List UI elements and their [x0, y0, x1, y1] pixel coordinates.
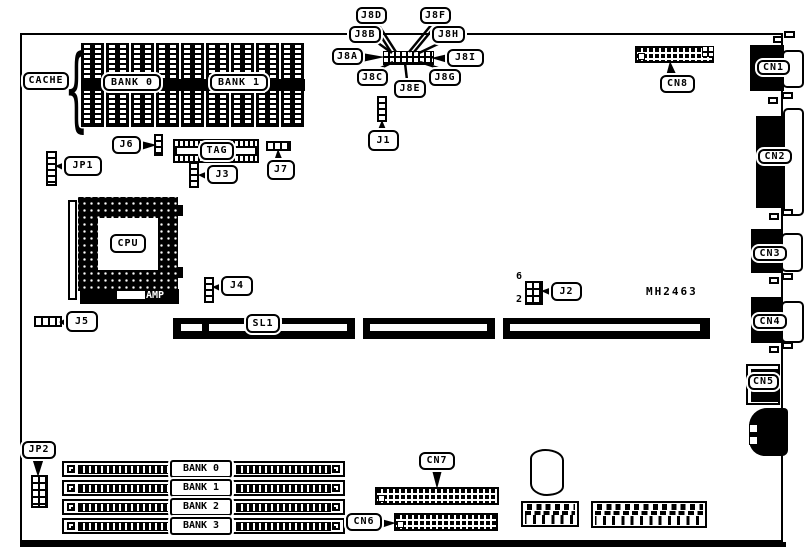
j8f-label: J8F: [420, 7, 451, 24]
bracket-tab: [782, 342, 793, 349]
simm-contacts: [78, 503, 172, 512]
power-connector-large: [591, 501, 707, 528]
j2-pin6-number: 6: [516, 272, 522, 282]
cn2-label: CN2: [758, 149, 792, 164]
connector-j4: [204, 277, 214, 303]
simm-clip: [67, 522, 75, 530]
cn3-label: CN3: [753, 246, 787, 261]
j2-label: J2: [551, 282, 582, 301]
connector-jp1: [46, 151, 57, 186]
cn7-pin1-marker: [378, 495, 385, 502]
cn7-label: CN7: [419, 452, 455, 470]
j8b-label: J8B: [349, 26, 381, 43]
cn5-label: CN5: [748, 374, 779, 390]
simm-contacts: [236, 465, 331, 474]
j8h-label: J8H: [432, 26, 465, 43]
connector-j5: [34, 316, 62, 327]
connector-j7: [266, 141, 291, 151]
cn8-pin1-marker: [638, 53, 645, 60]
simm-contacts: [236, 522, 331, 531]
power-cells: [595, 516, 703, 525]
simm-clip: [67, 503, 75, 511]
simm-bank3-label: BANK 3: [170, 517, 232, 535]
socket-tab: [178, 205, 183, 216]
bracket-tab: [769, 346, 779, 353]
j2-pin2-number: 2: [516, 295, 522, 305]
simm-clip: [332, 484, 340, 492]
connector-j1: [377, 96, 387, 122]
simm-clip: [67, 484, 75, 492]
small-pin-block: [702, 46, 714, 57]
bracket-tab: [773, 36, 783, 43]
socket-tab: [178, 267, 183, 278]
bracket-tab: [782, 92, 793, 99]
cn4-label: CN4: [753, 314, 787, 329]
connector-j6: [154, 134, 163, 156]
battery-outline: [530, 449, 564, 496]
cn1-label: CN1: [757, 60, 790, 75]
j8e-label: J8E: [394, 80, 426, 98]
cn6-pin1-marker: [397, 521, 404, 528]
jumper-block-jp2: [31, 475, 48, 508]
connector-cn7: [375, 487, 499, 505]
simm-contacts: [78, 484, 172, 493]
simm-clip: [332, 522, 340, 530]
power-connector-small: [521, 501, 579, 527]
cache-bank0-label: BANK 0: [103, 74, 161, 91]
slot-key: [510, 324, 700, 331]
amp-text: AMP: [146, 291, 164, 301]
simm-bank2-label: BANK 2: [170, 498, 232, 516]
board-bottom-edge: [20, 542, 786, 547]
power-pins: [525, 504, 575, 510]
jp1-label: JP1: [64, 156, 102, 176]
j4-label: J4: [221, 276, 253, 296]
cache-bank1-label: BANK 1: [210, 74, 268, 91]
zif-lever: [68, 200, 77, 300]
amp-bar: [80, 289, 179, 304]
cache-label: CACHE: [23, 72, 69, 90]
simm-clip: [332, 503, 340, 511]
jp2-label: JP2: [22, 441, 56, 459]
simm-contacts: [78, 465, 172, 474]
cpu-label: CPU: [110, 234, 146, 253]
j6-label: J6: [112, 136, 141, 154]
j8c-label: J8C: [357, 69, 388, 86]
simm-contacts: [236, 503, 331, 512]
cn8-label: CN8: [660, 75, 695, 93]
jumper-block-j8: [383, 51, 434, 65]
slot-key: [181, 324, 202, 331]
din-tab: [749, 436, 758, 445]
power-pins: [595, 504, 703, 510]
j5-label: J5: [66, 311, 98, 332]
bracket-tab: [784, 31, 795, 38]
sl1-label: SL1: [246, 314, 280, 333]
bracket-tab: [769, 213, 779, 220]
simm-contacts: [78, 522, 172, 531]
bracket-tab: [782, 273, 793, 280]
bracket-tab: [769, 277, 779, 284]
tag-label: TAG: [200, 142, 234, 160]
slot-key: [370, 324, 487, 331]
simm-bank1-label: BANK 1: [170, 479, 232, 497]
j1-label: J1: [368, 130, 399, 151]
bracket-tab: [782, 209, 793, 216]
j8a-label: J8A: [332, 48, 363, 65]
simm-bank0-label: BANK 0: [170, 460, 232, 478]
j3-label: J3: [207, 165, 238, 184]
cn6-label: CN6: [346, 513, 382, 531]
j8g-label: J8G: [429, 69, 461, 86]
simm-contacts: [236, 484, 331, 493]
connector-cn6: [394, 513, 498, 531]
jumper-block-j2: [525, 281, 543, 305]
power-contacts: [595, 511, 703, 515]
j8i-label: J8I: [447, 49, 484, 67]
simm-clip: [67, 465, 75, 473]
j7-label: J7: [267, 160, 295, 180]
power-cells: [525, 515, 575, 524]
bracket-tab: [768, 97, 778, 104]
simm-clip: [332, 465, 340, 473]
expansion-slot-2: [363, 318, 495, 339]
expansion-slot-3: [503, 318, 710, 339]
amp-notch: [117, 291, 145, 299]
j8d-label: J8D: [356, 7, 387, 24]
din-tab: [749, 424, 758, 433]
motherboard-diagram: { CACHE BANK 0 BANK 1 J6 TAG J7 J3 JP1 C…: [0, 0, 806, 552]
part-number: MH2463: [646, 286, 698, 297]
connector-j3: [189, 162, 199, 188]
